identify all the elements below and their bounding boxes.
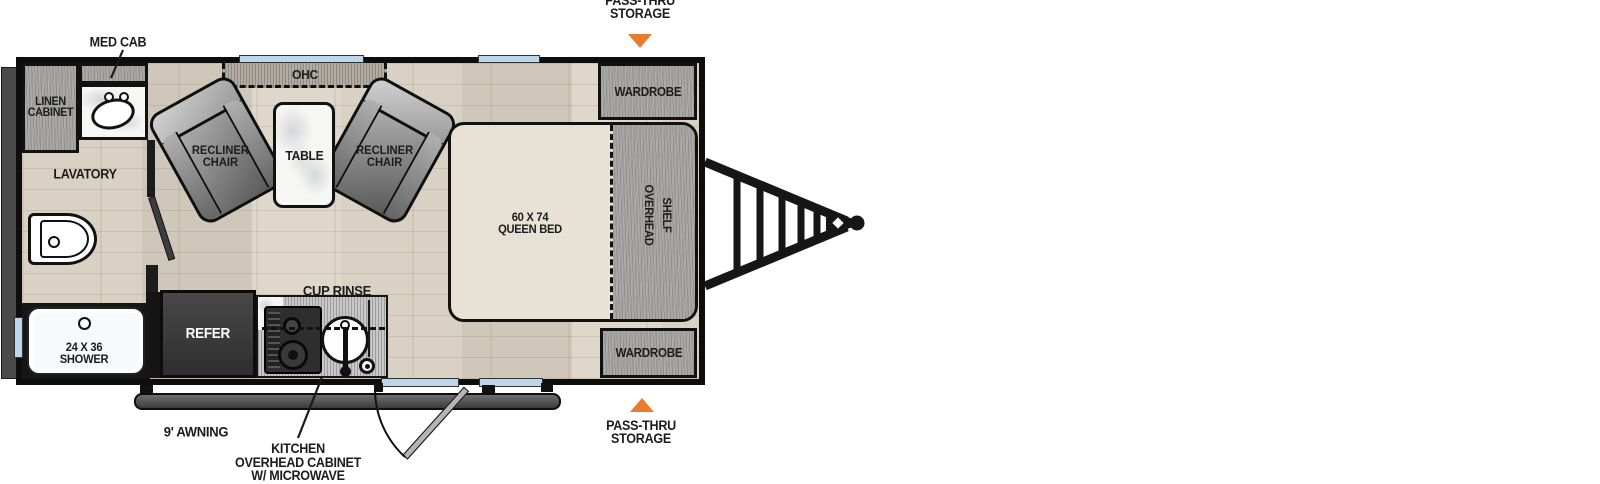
shower: 24 X 36 SHOWER [22, 303, 150, 379]
bathroom-wall-stub [146, 265, 158, 292]
bath-sink-icon [88, 94, 138, 134]
wardrobe-bottom-label: WARDROBE [615, 346, 682, 360]
awning-bar [134, 393, 561, 410]
shower-drain-icon [78, 317, 91, 330]
pass-thru-top-line2: STORAGE [605, 7, 675, 20]
window-bottom-door [382, 379, 458, 386]
tongue-arm-bottom [705, 227, 847, 286]
queen-bed: 60 X 74 QUEEN BED OVERHEAD SHELF [448, 122, 698, 322]
table-label: TABLE [285, 148, 323, 163]
bath-vanity-counter [79, 84, 148, 140]
faucet-knob-icon [104, 92, 114, 102]
window-top-bed [479, 56, 539, 62]
overhead-shelf-label-line2: SHELF [660, 197, 674, 232]
hitch-coupler [826, 210, 853, 236]
floorplan-canvas: PASS-THRU STORAGE LINEN CABINET LAVATORY [0, 0, 1600, 484]
awning-label: 9' AWNING [164, 426, 228, 439]
kitchen-counter [256, 295, 388, 378]
toilet-icon [28, 213, 97, 265]
hitch-ball-icon [850, 216, 865, 231]
queen-bed-label: 60 X 74 QUEEN BED [498, 211, 562, 235]
window-left-shower [15, 318, 22, 357]
medicine-cabinet [79, 63, 148, 84]
cup-rinse-icon [359, 358, 375, 374]
pass-thru-bottom-arrow-icon [630, 398, 654, 412]
med-cab-label: MED CAB [90, 36, 147, 49]
faucet-knob-icon [119, 92, 129, 102]
cup-rinse-label: CUP RINSE [303, 285, 371, 298]
bed-shelf-dashed-divider [610, 125, 613, 319]
tongue-arm-top [705, 162, 847, 221]
pass-thru-bottom-line2: STORAGE [606, 432, 676, 445]
trailer-body: LINEN CABINET LAVATORY 24 X 3 [16, 57, 705, 385]
wardrobe-top-label: WARDROBE [614, 85, 681, 99]
refrigerator: REFER [160, 290, 256, 378]
recliner-right-label: RECLINER CHAIR [356, 145, 413, 169]
burner-small-icon [283, 317, 301, 335]
shower-label: 24 X 36 SHOWER [60, 341, 109, 365]
bathroom-wall [147, 140, 155, 197]
door-frame-nub [374, 383, 383, 392]
burner-large-icon [278, 340, 308, 370]
recliner-left-label: RECLINER CHAIR [192, 145, 249, 169]
pass-thru-storage-bottom-label: PASS-THRU STORAGE [606, 419, 676, 445]
linen-cabinet: LINEN CABINET [22, 63, 79, 153]
refer-label: REFER [186, 326, 230, 342]
wardrobe-top: WARDROBE [598, 63, 697, 120]
linen-cabinet-label: LINEN CABINET [28, 97, 74, 120]
lavatory-label: LAVATORY [53, 168, 116, 181]
wardrobe-bottom: WARDROBE [600, 328, 697, 378]
wall-nub [541, 383, 553, 392]
kitchen-ohc-label: KITCHEN OVERHEAD CABINET W/ MICROWAVE [235, 442, 361, 483]
faucet-stem [343, 330, 348, 367]
pass-thru-storage-top-label: PASS-THRU STORAGE [605, 0, 675, 20]
trailer-tongue [705, 162, 865, 286]
dinette-table: TABLE [273, 102, 335, 208]
overhead-cabinet-ohc: OHC [222, 63, 387, 88]
faucet-base [340, 366, 351, 377]
pass-thru-top-arrow-icon [628, 34, 652, 48]
ohc-label: OHC [291, 67, 317, 82]
cooktop-icon [264, 306, 322, 374]
window-top-dinette [240, 56, 363, 62]
cup-rinse-center [365, 364, 370, 369]
coupler-latch [832, 217, 843, 228]
toilet-flush-icon [48, 236, 60, 248]
burner-center [288, 350, 298, 360]
kitchen-overhead-dashed-line [262, 327, 385, 330]
overhead-shelf-label-line1: OVERHEAD [642, 184, 656, 245]
